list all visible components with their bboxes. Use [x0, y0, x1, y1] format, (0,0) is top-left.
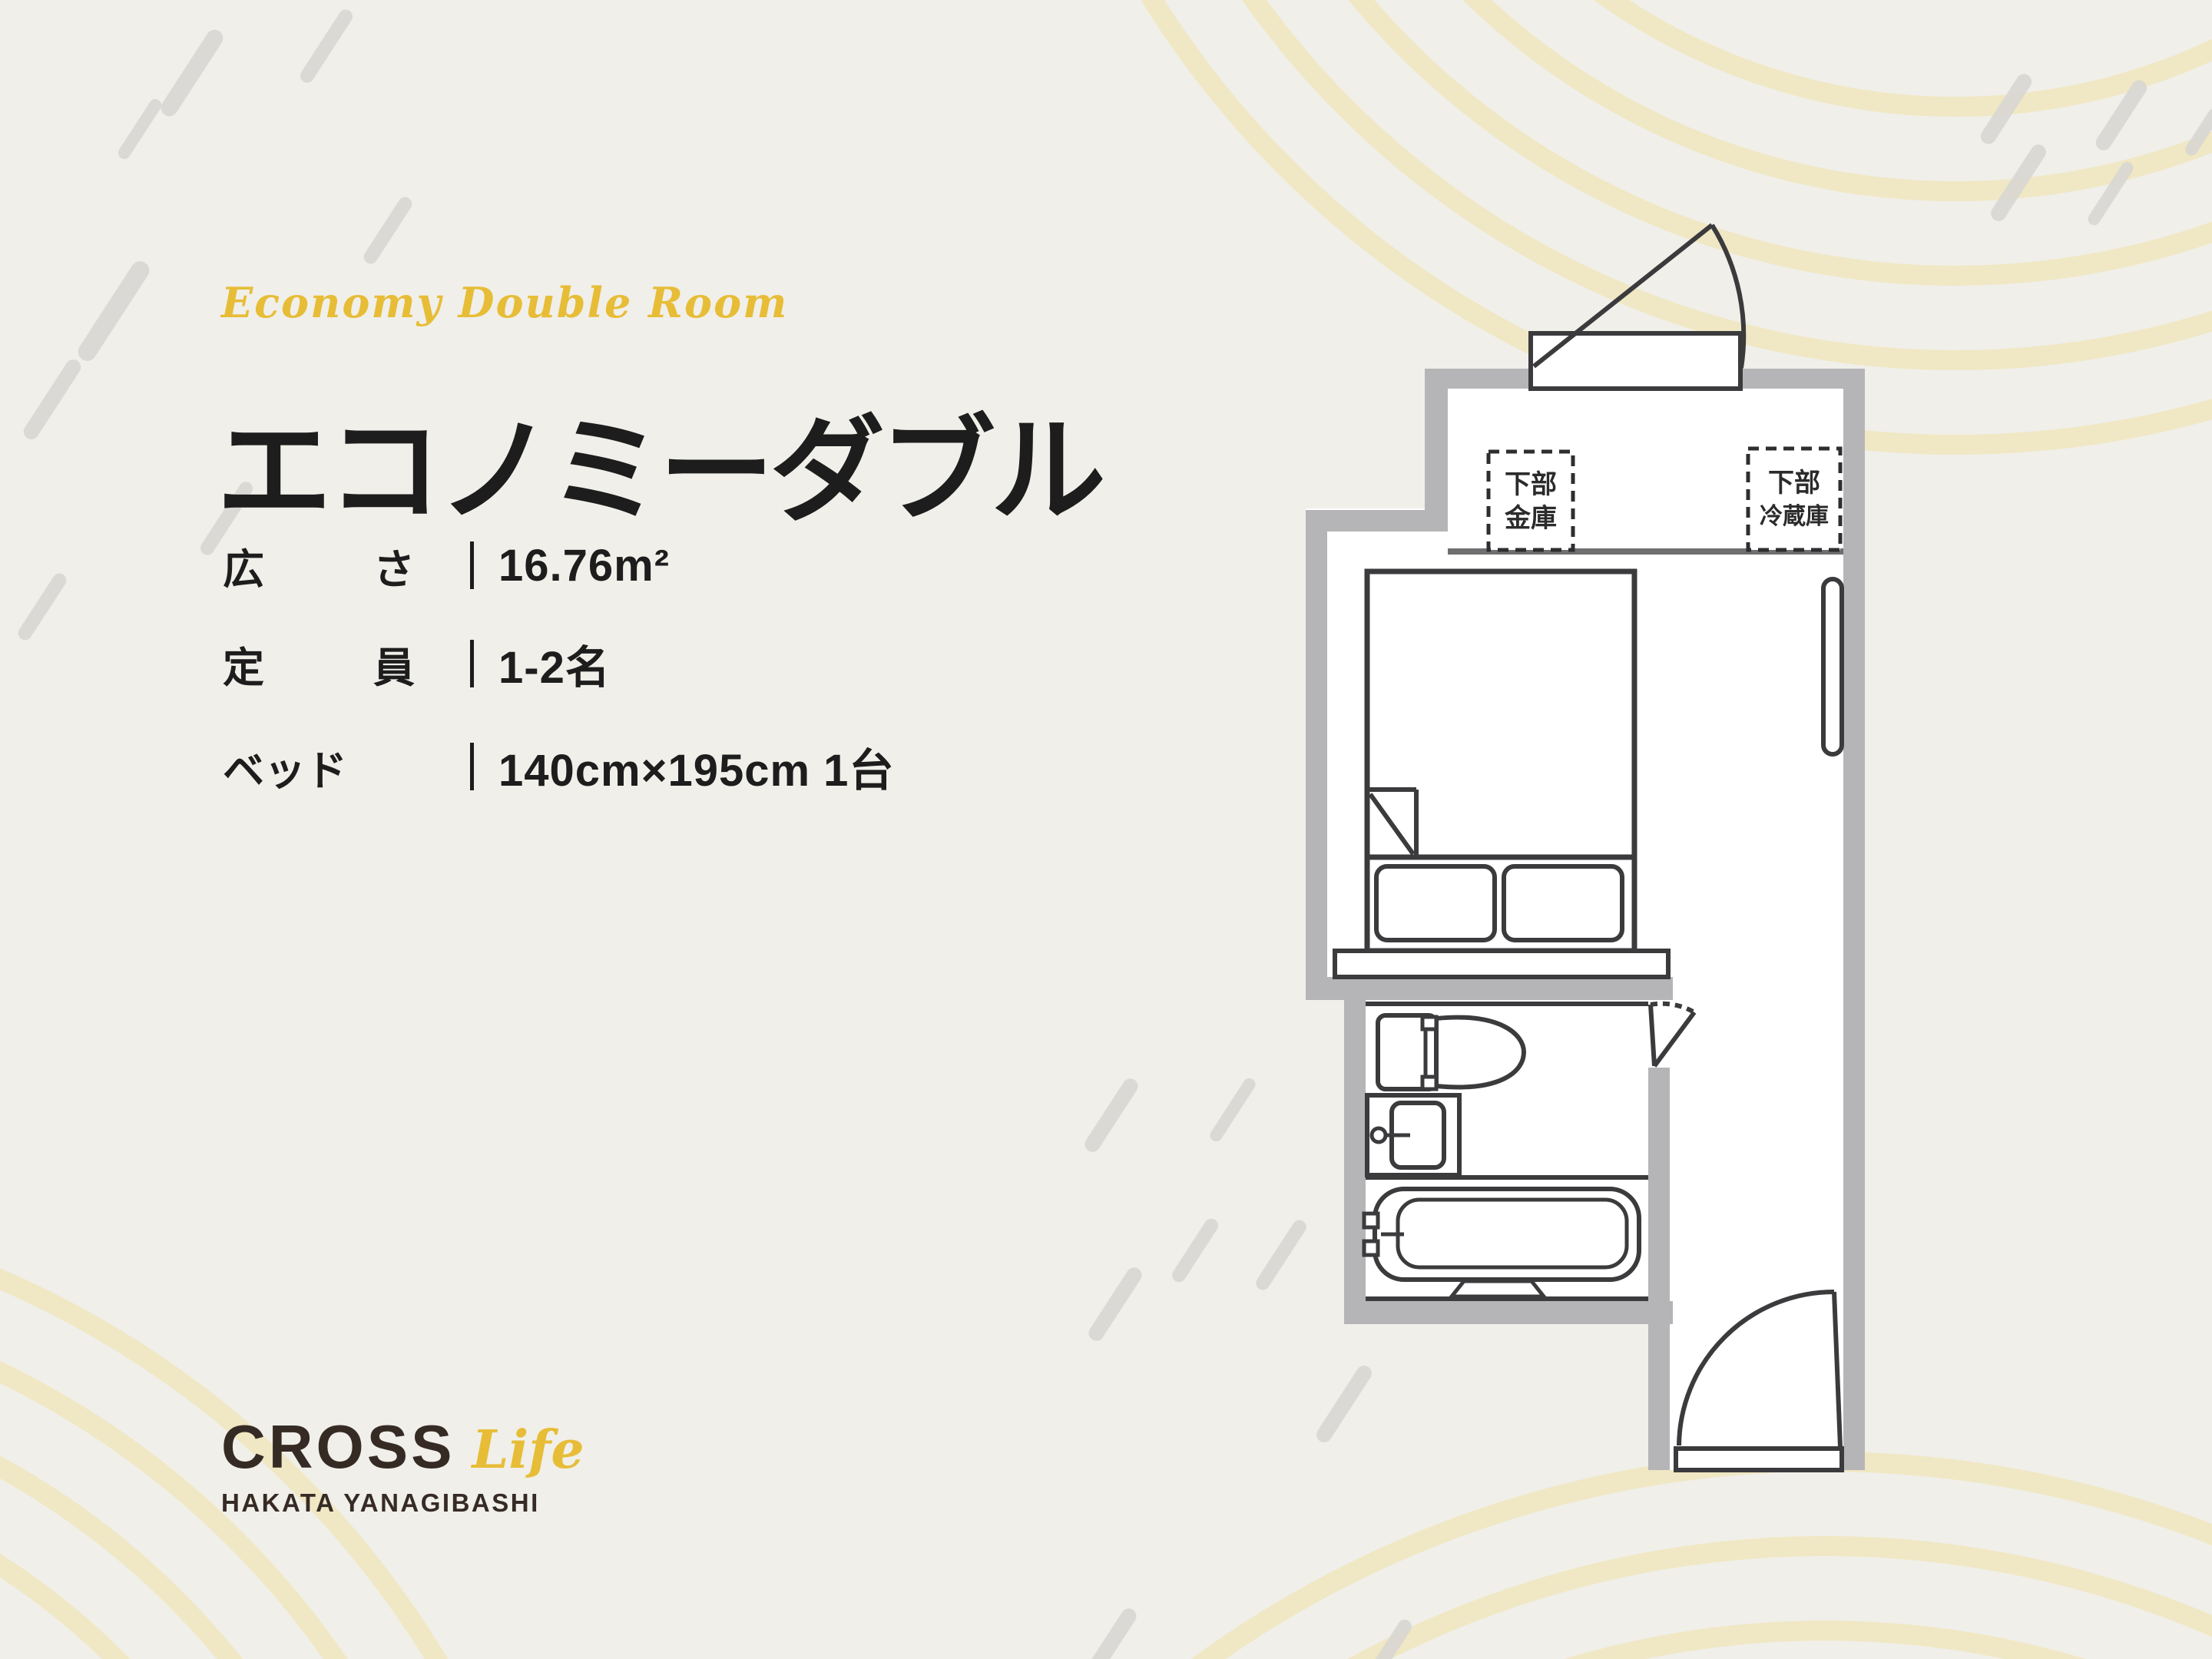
spec-value-size: 16.76m²: [498, 540, 670, 591]
wall-panel-icon: [1823, 579, 1842, 754]
wall: [1306, 510, 1327, 1000]
closet-door-icon: [1531, 225, 1743, 389]
spec-row-capacity: 定 員 1-2名: [223, 636, 611, 691]
brush-stroke: [157, 26, 226, 119]
logo-life-text: Life: [472, 1419, 584, 1481]
spec-label: ベッド: [223, 737, 415, 797]
spec-label-char: 広: [223, 535, 264, 596]
floorplan-diagram: 下部 金庫 下部 冷蔵庫: [1252, 177, 1889, 1559]
under-counter-fridge-box: [1748, 449, 1840, 550]
brush-stroke: [15, 571, 69, 643]
fridge-label-line2: 冷蔵庫: [1760, 504, 1829, 529]
entrance-door-leaf: [1676, 1449, 1842, 1470]
spec-label-char: 定: [223, 634, 264, 694]
page-title: エコノミーダブル: [217, 378, 1101, 545]
brush-stroke: [21, 356, 84, 442]
headboard: [1335, 951, 1668, 977]
spec-label: 定 員: [223, 634, 415, 694]
spec-value-bed: 140cm×195cm 1台: [498, 734, 894, 799]
double-bed-icon: [1335, 571, 1668, 977]
under-counter-safe-box: [1488, 452, 1573, 550]
wall: [1306, 977, 1673, 1000]
safe-label-line1: 下部: [1505, 470, 1557, 499]
brush-stroke: [1081, 1605, 1140, 1659]
safe-label-line2: 金庫: [1504, 503, 1557, 533]
bath-step-mat: [1452, 1281, 1544, 1296]
spec-label-char: さ: [373, 535, 415, 596]
toilet-icon: [1436, 1018, 1524, 1088]
fridge-label-line1: 下部: [1768, 469, 1820, 498]
toilet-detail: [1422, 1077, 1436, 1089]
spec-label: 広 さ: [223, 535, 415, 596]
pillow-icon: [1376, 866, 1495, 940]
pillow-icon: [1504, 866, 1622, 940]
bathtub-fixture: [1364, 1214, 1378, 1227]
logo-cross-text: CROSS: [221, 1412, 455, 1482]
sink-faucet-icon: [1372, 1128, 1386, 1142]
bathtub-fixture: [1364, 1241, 1378, 1255]
wall: [1843, 369, 1865, 1470]
brush-stroke: [1207, 1076, 1257, 1144]
spec-label-char: 員: [373, 634, 415, 694]
logo-location-text: HAKATA YANAGIBASHI: [221, 1488, 584, 1518]
spec-divider: [470, 640, 474, 687]
wall: [1648, 1068, 1670, 1470]
spec-value-capacity: 1-2名: [498, 631, 611, 696]
wall: [1425, 369, 1448, 531]
brush-stroke: [116, 97, 164, 161]
wall: [1344, 1000, 1366, 1324]
room-info-card: Economy Double Room エコノミーダブル 広 さ 16.76m²…: [0, 0, 2212, 1659]
spec-row-size: 広 さ 16.76m²: [223, 538, 670, 593]
brush-stroke: [75, 258, 153, 365]
brush-stroke: [1082, 1075, 1141, 1154]
brand-logo: CROSS Life HAKATA YANAGIBASHI: [221, 1412, 584, 1518]
spec-divider: [470, 541, 474, 589]
brush-stroke: [297, 7, 355, 85]
wall: [1344, 1301, 1673, 1324]
spec-row-bed: ベッド 140cm×195cm 1台: [223, 739, 894, 794]
room-type-subtitle-en: Economy Double Room: [221, 278, 788, 327]
toilet-detail: [1422, 1017, 1436, 1029]
brush-stroke: [1086, 1264, 1145, 1343]
spec-divider: [470, 743, 474, 790]
brush-stroke: [1170, 1216, 1221, 1284]
brush-stroke: [361, 194, 415, 267]
